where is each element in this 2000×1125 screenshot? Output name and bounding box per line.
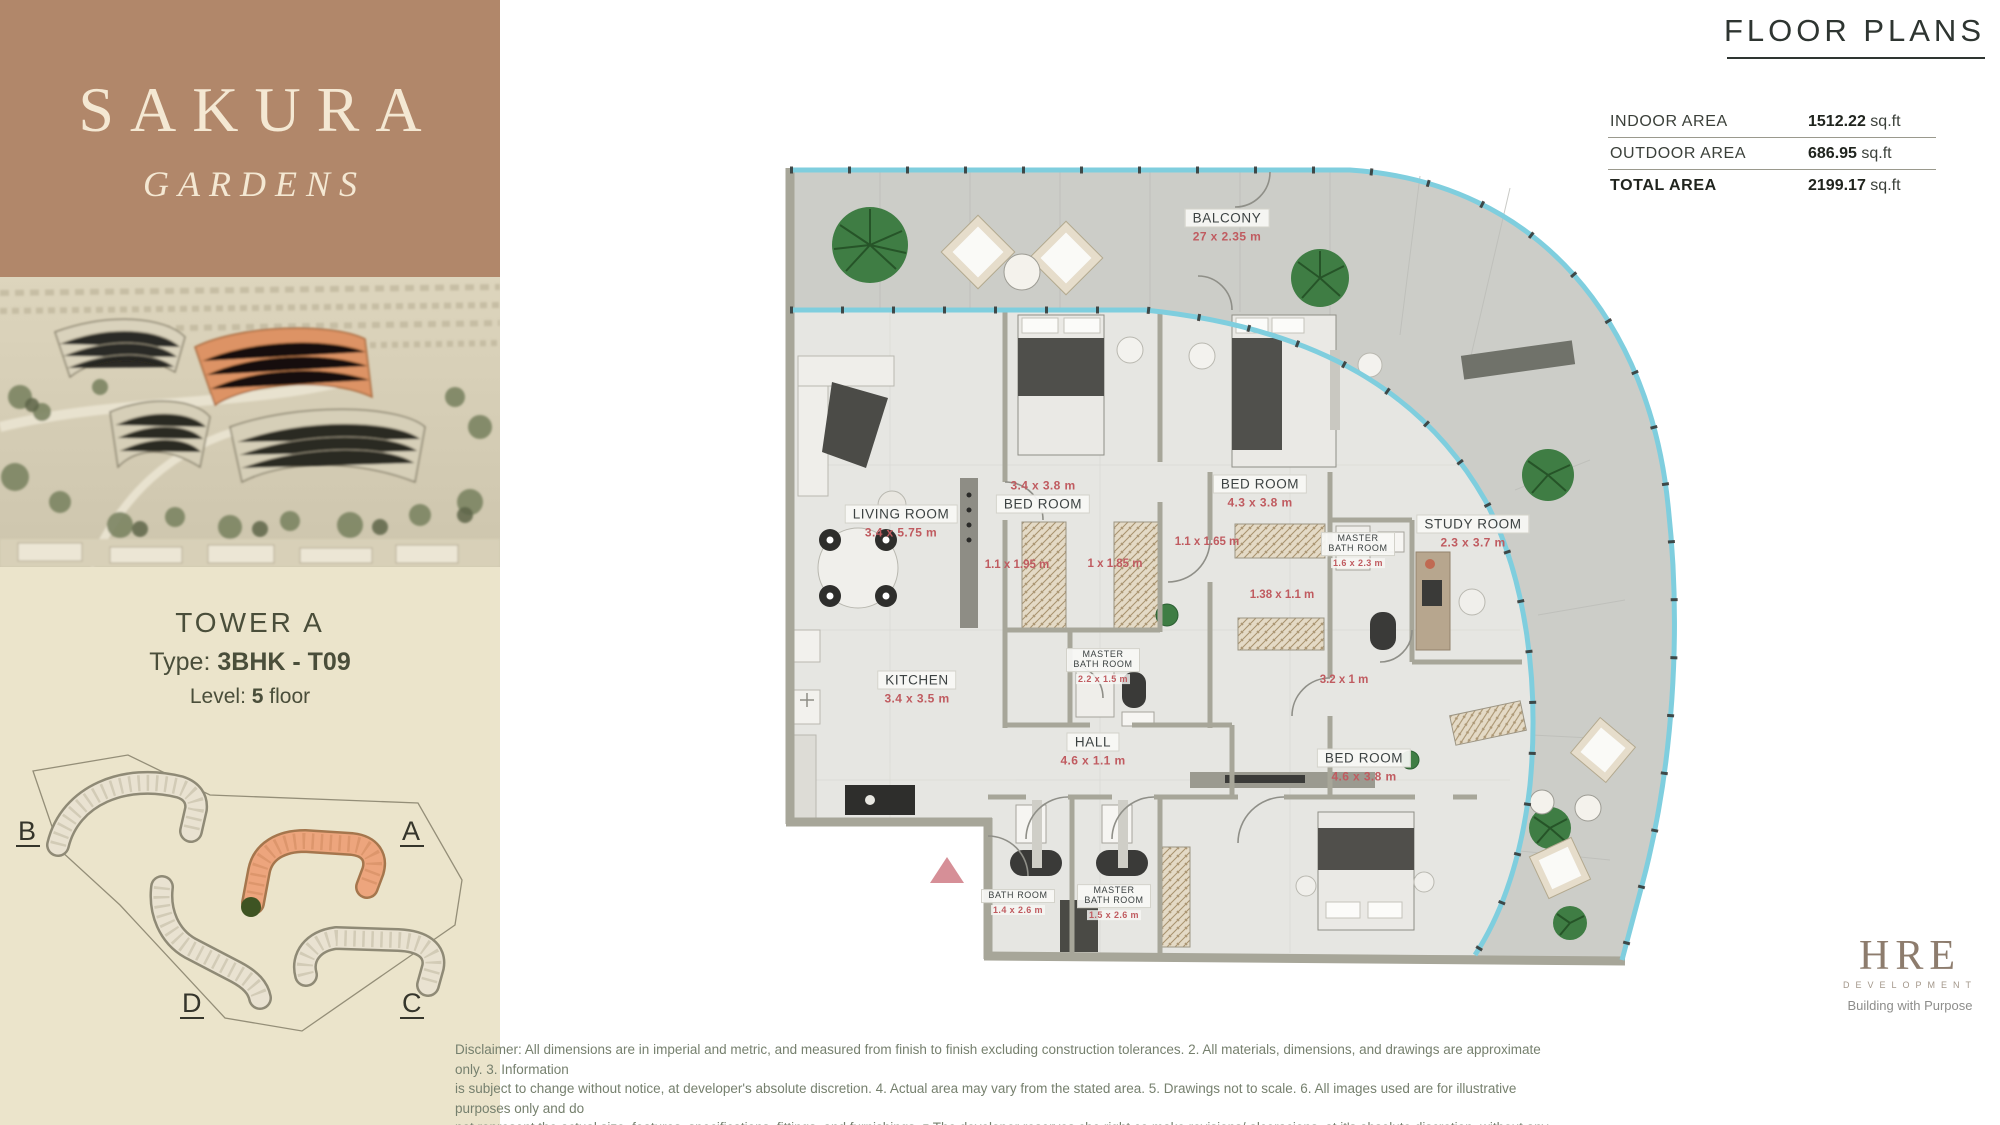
floor-plan: BALCONY 27 x 2.35 m LIVING ROOM 3.4 x 5.… bbox=[770, 160, 1690, 975]
disclaimer-line-3: not represent the actual size, features,… bbox=[455, 1118, 1555, 1125]
brand-header: SAKURA GARDENS bbox=[0, 0, 500, 277]
site-label-b: B bbox=[18, 816, 36, 846]
hre-division-text: DEVELOPMENT bbox=[1835, 980, 1985, 990]
site-plan-map: B A D C bbox=[0, 735, 500, 1035]
bedroom1-bed bbox=[1018, 315, 1104, 455]
disclaimer: Disclaimer: All dimensions are in imperi… bbox=[455, 1040, 1555, 1125]
level-label: Level: bbox=[190, 685, 246, 708]
unit-level: Level: 5 floor bbox=[0, 685, 500, 709]
unit-info-panel: TOWER A Type: 3BHK - T09 Level: 5 floor bbox=[0, 567, 500, 1125]
outdoor-area-unit: sq.ft bbox=[1861, 145, 1891, 162]
unit-location-dot bbox=[241, 897, 261, 917]
site-label-c: C bbox=[402, 988, 422, 1018]
floor-plan-drawing bbox=[770, 160, 1690, 975]
tower-value: A bbox=[303, 607, 325, 638]
type-label: Type: bbox=[149, 648, 210, 676]
developer-logo: HRE DEVELOPMENT Building with Purpose bbox=[1835, 932, 1985, 1013]
unit-type: Type: 3BHK - T09 bbox=[0, 648, 500, 677]
site-building-c bbox=[305, 938, 434, 985]
level-value: 5 bbox=[252, 685, 264, 708]
plant-icon bbox=[1522, 449, 1574, 501]
disclaimer-line-1: Disclaimer: All dimensions are in imperi… bbox=[455, 1040, 1555, 1079]
indoor-area-label: INDOOR AREA bbox=[1610, 113, 1808, 131]
plant-icon bbox=[1291, 249, 1349, 307]
outdoor-area-number: 686.95 bbox=[1808, 145, 1857, 162]
total-area-number: 2199.17 bbox=[1808, 177, 1866, 194]
indoor-area-number: 1512.22 bbox=[1808, 113, 1866, 130]
brand-subtitle: GARDENS bbox=[143, 163, 366, 205]
hre-tagline: Building with Purpose bbox=[1835, 998, 1985, 1013]
outdoor-area-value: 686.95 sq.ft bbox=[1808, 145, 1892, 163]
total-area-value: 2199.17 sq.ft bbox=[1808, 177, 1901, 195]
hre-logo-text: HRE bbox=[1835, 932, 1985, 980]
area-row-indoor: INDOOR AREA 1512.22 sq.ft bbox=[1608, 106, 1936, 138]
site-building-b bbox=[58, 783, 196, 845]
indoor-area-value: 1512.22 sq.ft bbox=[1808, 113, 1901, 131]
brochure-page: SAKURA GARDENS bbox=[0, 0, 2000, 1125]
level-suffix: floor bbox=[269, 685, 310, 708]
page-title: FLOOR PLANS bbox=[1724, 13, 1985, 49]
left-panel: SAKURA GARDENS bbox=[0, 0, 500, 1125]
title-underline bbox=[1727, 57, 1985, 59]
plant-icon bbox=[1553, 906, 1587, 940]
aerial-render-image bbox=[0, 277, 500, 567]
tower-name: TOWER A bbox=[0, 607, 500, 639]
entrance-arrow-icon bbox=[930, 857, 964, 883]
brand-title: SAKURA bbox=[78, 73, 437, 147]
total-area-unit: sq.ft bbox=[1870, 177, 1900, 194]
indoor-area-unit: sq.ft bbox=[1870, 113, 1900, 130]
disclaimer-line-2: is subject to change without notice, at … bbox=[455, 1079, 1555, 1118]
site-label-d: D bbox=[182, 988, 202, 1018]
tower-label: TOWER bbox=[175, 607, 294, 638]
unit-info: TOWER A Type: 3BHK - T09 Level: 5 floor bbox=[0, 607, 500, 709]
type-value: 3BHK - T09 bbox=[217, 648, 350, 676]
site-label-a: A bbox=[402, 816, 420, 846]
plant-icon bbox=[832, 207, 908, 283]
site-building-a-highlighted bbox=[241, 841, 374, 917]
